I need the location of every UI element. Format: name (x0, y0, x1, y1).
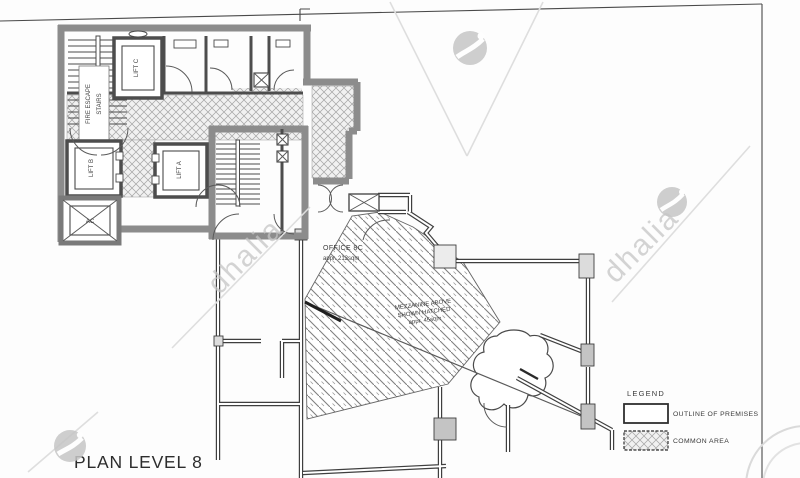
floor-plan-drawing: FIRE ESCAPE STAIRS LIFT C LIFT B LIFT A … (0, 0, 800, 478)
door-arc (274, 70, 294, 90)
fire-stairs-label-1: FIRE ESCAPE (86, 84, 92, 124)
lift-b: LIFT B (67, 141, 123, 196)
legend-label-common: COMMON AREA (673, 438, 729, 445)
fixture (174, 40, 196, 48)
column (581, 404, 595, 429)
lift-b-door-notch (116, 152, 123, 160)
door-arc (166, 66, 192, 92)
lift-a-label: LIFT A (177, 161, 183, 179)
lift-c-label: LIFT C (134, 58, 140, 77)
column (214, 336, 223, 346)
column (434, 245, 456, 268)
watermark-arc (763, 443, 800, 478)
watermark-logo-icon (657, 187, 687, 217)
fixture (276, 40, 290, 47)
common-area-lift-lobby (122, 140, 155, 197)
column (579, 254, 594, 278)
ac-label: AC (86, 219, 95, 225)
lift-c: LIFT C (114, 31, 162, 98)
legend-title: LEGEND (627, 389, 665, 398)
office-area-label: appr. 213sqm (323, 256, 359, 262)
central-stair (216, 140, 260, 206)
legend-swatch-common (624, 431, 668, 450)
lift-c-door-indicator (129, 31, 147, 37)
column (434, 418, 456, 440)
stair-label-box (79, 66, 109, 142)
floorplan-page: FIRE ESCAPE STAIRS LIFT C LIFT B LIFT A … (0, 0, 800, 478)
watermark-line (390, 2, 543, 156)
watermark-arc (746, 426, 800, 478)
border-top-line (0, 4, 762, 21)
lift-a-door-notch (152, 154, 159, 162)
lift-b-door-notch (116, 174, 123, 182)
lift-a: LIFT A (152, 144, 207, 197)
fire-stairs-label-2: STAIRS (97, 93, 103, 114)
column (581, 344, 594, 366)
ac-unit: AC (61, 198, 119, 243)
plan-title: PLAN LEVEL 8 (74, 452, 203, 472)
door-arc (210, 68, 232, 90)
office-name-label: OFFICE 8C (323, 245, 363, 252)
lift-b-label: LIFT B (89, 159, 95, 177)
watermark-logo-icon (453, 31, 487, 65)
watermark-logo-icon (54, 430, 86, 462)
lift-a-door-notch (152, 176, 159, 184)
legend-label-outline: OUTLINE OF PREMISES (673, 411, 758, 418)
legend: LEGEND OUTLINE OF PREMISES COMMON AREA (624, 389, 758, 450)
border-tick (300, 9, 310, 21)
fixture (214, 40, 228, 47)
legend-swatch-outline (624, 404, 668, 423)
